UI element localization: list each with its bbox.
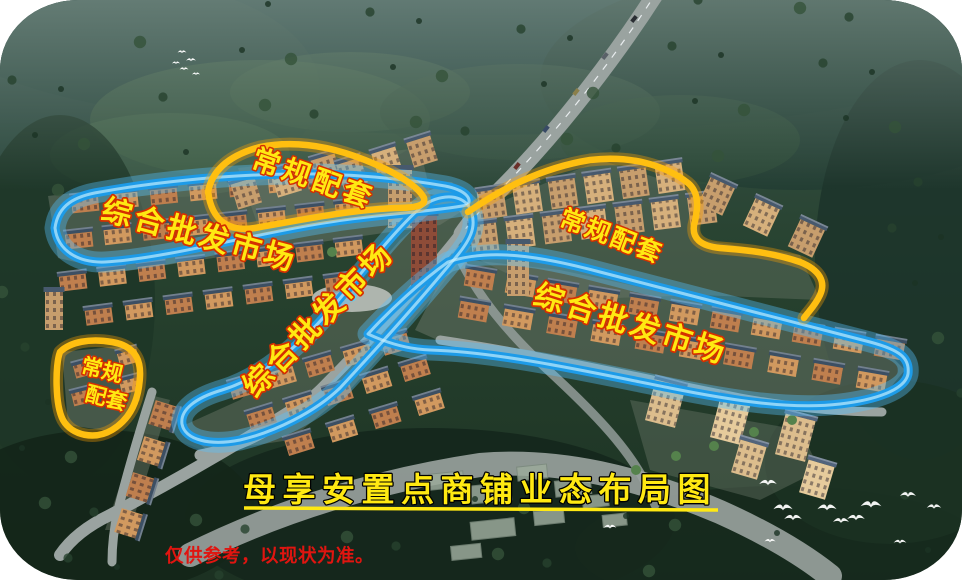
tree bbox=[460, 126, 469, 135]
tree bbox=[818, 58, 827, 67]
tree bbox=[134, 36, 146, 48]
street-tree bbox=[671, 451, 681, 461]
tower-building bbox=[44, 287, 65, 330]
tree bbox=[52, 184, 64, 196]
tree bbox=[63, 553, 72, 562]
tree bbox=[932, 332, 944, 344]
map-title: 母享安置点商铺业态布局图 bbox=[243, 470, 717, 509]
tree bbox=[183, 149, 189, 155]
tree bbox=[887, 223, 896, 232]
tree bbox=[416, 18, 422, 24]
street-tree bbox=[709, 441, 719, 451]
tree bbox=[669, 519, 681, 531]
tree bbox=[843, 115, 849, 121]
tree bbox=[58, 86, 64, 92]
tree bbox=[611, 143, 620, 152]
tree bbox=[265, 1, 271, 7]
disclaimer-text: 仅供参考，以现状为准。 bbox=[164, 545, 374, 567]
tree bbox=[844, 12, 853, 21]
tree bbox=[541, 81, 547, 87]
tree bbox=[692, 98, 698, 104]
tree bbox=[945, 19, 957, 31]
tree bbox=[913, 177, 922, 186]
tree bbox=[718, 52, 724, 58]
street-tree bbox=[327, 247, 337, 257]
building bbox=[202, 286, 234, 310]
tree bbox=[774, 530, 780, 536]
tree bbox=[567, 35, 573, 41]
tree bbox=[738, 104, 750, 116]
tree bbox=[410, 116, 422, 128]
masterplan-canvas: 常规配套 综合批发市场 综合批发市场 常规配套 综合批发市场 常规 配套 母享安… bbox=[0, 0, 962, 580]
tree bbox=[587, 87, 599, 99]
tree bbox=[391, 541, 400, 550]
tree bbox=[19, 445, 25, 451]
tree bbox=[39, 497, 51, 509]
tree bbox=[516, 24, 525, 33]
tree bbox=[623, 513, 629, 519]
tree bbox=[45, 399, 51, 405]
tree bbox=[667, 41, 676, 50]
building bbox=[122, 297, 154, 321]
tree bbox=[214, 570, 223, 579]
street-tree bbox=[749, 427, 759, 437]
tree bbox=[889, 121, 901, 133]
tree bbox=[390, 64, 396, 70]
tree bbox=[912, 280, 918, 286]
tree bbox=[7, 75, 16, 84]
masterplan-svg: 常规配套 综合批发市场 综合批发市场 常规配套 综合批发市场 常规 配套 母享安… bbox=[0, 0, 962, 580]
tree bbox=[20, 342, 29, 351]
building bbox=[82, 302, 114, 326]
building bbox=[162, 292, 194, 316]
tree bbox=[158, 92, 167, 101]
tree bbox=[309, 109, 318, 118]
tree bbox=[365, 7, 374, 16]
building bbox=[649, 194, 683, 231]
tree bbox=[114, 564, 120, 570]
street-tree bbox=[787, 415, 797, 425]
tree bbox=[436, 70, 448, 82]
tree bbox=[794, 2, 806, 14]
tree bbox=[561, 133, 573, 145]
pale-building bbox=[451, 543, 482, 560]
tree bbox=[190, 514, 202, 526]
tree bbox=[542, 558, 551, 567]
tree bbox=[78, 138, 90, 150]
tree bbox=[65, 451, 77, 463]
tree bbox=[285, 53, 297, 65]
building bbox=[282, 276, 314, 300]
tree bbox=[32, 132, 38, 138]
tree bbox=[492, 548, 504, 560]
building bbox=[242, 281, 274, 305]
tree bbox=[938, 234, 944, 240]
tree bbox=[259, 99, 271, 111]
tree bbox=[712, 150, 724, 162]
title-underline bbox=[244, 508, 718, 510]
tree bbox=[341, 531, 353, 543]
tree bbox=[643, 565, 655, 577]
tree bbox=[89, 507, 98, 516]
tree bbox=[239, 47, 245, 53]
tree bbox=[240, 524, 249, 533]
tree bbox=[925, 547, 931, 553]
tree bbox=[869, 69, 875, 75]
